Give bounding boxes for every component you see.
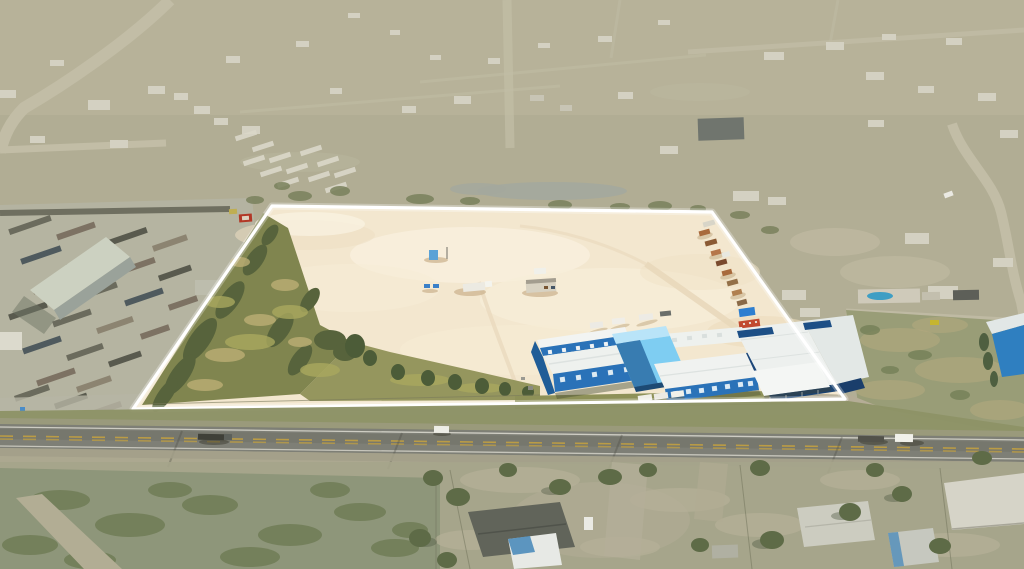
building-part [686,389,692,395]
distant-building [454,96,471,104]
south-item [820,470,900,490]
blue-pump [433,284,439,288]
tree [446,488,470,506]
south-item [2,535,58,555]
building-part [560,377,566,383]
field-patch [950,390,970,400]
tree [499,382,511,396]
brush [187,379,223,391]
south-item [182,495,238,515]
tree [760,531,784,549]
distant-building [918,86,934,93]
tree [499,463,517,477]
tree [409,529,431,547]
distant-building [402,106,416,113]
bush [730,211,750,219]
field-patch [979,333,989,351]
tree [421,370,435,386]
building-part [576,375,582,381]
brush [272,305,308,319]
white-pickup [895,434,913,442]
small-house [922,292,940,300]
tree [549,479,571,495]
building-part [521,377,525,380]
bush [460,197,480,205]
bush [246,196,264,204]
machinery [749,322,751,324]
distant-building [530,95,544,101]
distant-building [30,136,45,143]
machinery [743,323,745,325]
building-part [576,346,581,351]
building-part [548,350,553,355]
equipment [422,289,438,293]
flatbed-trailer [858,436,884,442]
building-part [717,333,722,338]
distant-building [214,118,228,125]
distant-building [560,105,572,111]
distant-building [660,146,678,154]
aerial-photo [0,0,1024,569]
white-car [434,426,449,433]
building-part [604,342,609,347]
tree [345,334,365,358]
building-part [702,334,707,339]
truck-cab [485,281,492,288]
brush [300,363,340,377]
distant-building [782,290,806,300]
distant-building [174,93,188,100]
distant-building [658,20,670,25]
distant-building [882,34,896,40]
yellow-vehicle [930,320,939,325]
building-part [748,381,754,387]
tree [750,460,770,476]
south-neighborhood [0,451,1024,569]
driveway [694,462,728,522]
distant-building [296,41,309,47]
distant-building [50,60,64,66]
building-part [528,386,533,390]
distant-building [88,100,110,110]
bush [330,186,350,196]
brush [271,279,299,291]
tree [892,486,912,502]
house-roof [944,473,1024,530]
distant-building [866,72,884,80]
distant-building [978,93,996,101]
distant-building [800,308,820,317]
tree [363,350,377,366]
tree [691,538,709,552]
distant-building [110,140,128,148]
red-sign-text-area [242,216,249,220]
tree [639,463,657,477]
south-item [95,513,165,537]
machinery [755,321,757,323]
tree [866,463,884,477]
distant-building [430,55,441,60]
equipment [551,286,555,289]
distant-building [764,52,784,60]
field-patch [912,317,968,333]
south-item [715,513,805,537]
distant-building [598,36,612,42]
distant-building [348,13,360,18]
tree [448,374,462,390]
dark-roof-house [953,290,979,300]
yellow-equipment [229,209,237,215]
bush [274,182,290,190]
dark-truck-cab [224,434,232,440]
blue-item [20,407,25,411]
distant-building [826,42,844,50]
distant-building [1000,130,1018,138]
distant-building [390,30,400,35]
tree [929,538,951,554]
bush [761,226,779,234]
brush [288,337,312,347]
blue-pump [424,284,430,288]
building-part [699,388,705,394]
tree [598,469,622,485]
distant-building [946,38,962,45]
parked-car [584,517,593,530]
distant-building [993,258,1013,267]
field-patch [990,371,998,387]
south-item [220,547,280,567]
tree [437,552,457,568]
distant-building [905,233,929,244]
ground-patch [650,83,750,101]
equipment [544,286,548,289]
brush [244,314,276,326]
white-shed [0,332,22,350]
tree [475,378,489,394]
building-part [562,348,567,353]
distant-building [488,58,500,64]
blue-tank [429,250,438,260]
brush [225,334,275,350]
building-part [725,384,731,390]
ground-patch [840,256,950,288]
distant-building [226,56,240,63]
small-outbuilding [712,545,738,559]
distant-building [868,120,884,127]
south-item [258,524,322,546]
dark-truck [198,434,224,440]
ground-patch [790,228,880,256]
distant-building [538,43,550,48]
building-part [712,386,718,392]
building-part [687,336,692,341]
south-item [148,482,192,498]
building-part [738,382,744,388]
field-patch [908,350,932,360]
distant-building [618,92,633,99]
building-part [672,338,677,343]
building-part [608,370,614,376]
brush [205,348,245,362]
distant-building [148,86,165,94]
white-pickup [534,268,546,275]
building-part [590,344,595,349]
tree [391,364,405,380]
aerial-screenshot [0,0,1024,569]
field-patch [881,366,899,374]
building-part [592,372,598,378]
bush [288,191,312,201]
field-patch [855,380,925,400]
tree [972,451,992,465]
field-patch [983,352,993,370]
ground-patch [450,183,506,195]
south-item [334,503,386,521]
tree [839,503,861,521]
distant-building [733,191,759,201]
dark-barn [698,117,745,141]
distant-building [0,90,16,98]
swimming-pool [867,292,893,300]
distant-building [194,106,210,114]
south-item [310,482,350,498]
tree [423,470,443,486]
distant-building [768,197,786,205]
field-patch [860,325,880,335]
bush [406,194,434,204]
distant-building [330,88,342,94]
